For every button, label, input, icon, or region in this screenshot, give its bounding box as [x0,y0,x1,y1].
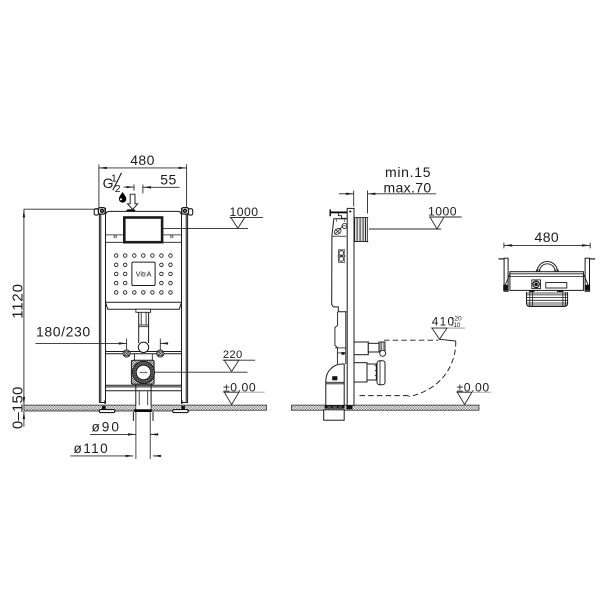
svg-text:1000: 1000 [428,205,457,219]
svg-text:ø110: ø110 [74,441,110,456]
svg-text:180/230: 180/230 [36,324,91,340]
svg-text:ø90: ø90 [92,419,121,434]
svg-text:480: 480 [535,229,560,245]
svg-text:1120: 1120 [9,283,26,318]
svg-text:min.15: min.15 [385,164,431,180]
svg-text:±0.00: ±0.00 [457,381,490,395]
svg-text:VitrA: VitrA [136,269,152,278]
svg-text:-10: -10 [451,322,461,329]
svg-text:480: 480 [130,152,155,168]
svg-text:0–150: 0–150 [9,386,26,429]
svg-text:±0.00: ±0.00 [223,381,256,395]
svg-text:220: 220 [223,349,243,361]
svg-text:max.70: max.70 [384,179,432,195]
svg-text:55: 55 [160,172,177,188]
svg-text:1000: 1000 [230,205,259,219]
